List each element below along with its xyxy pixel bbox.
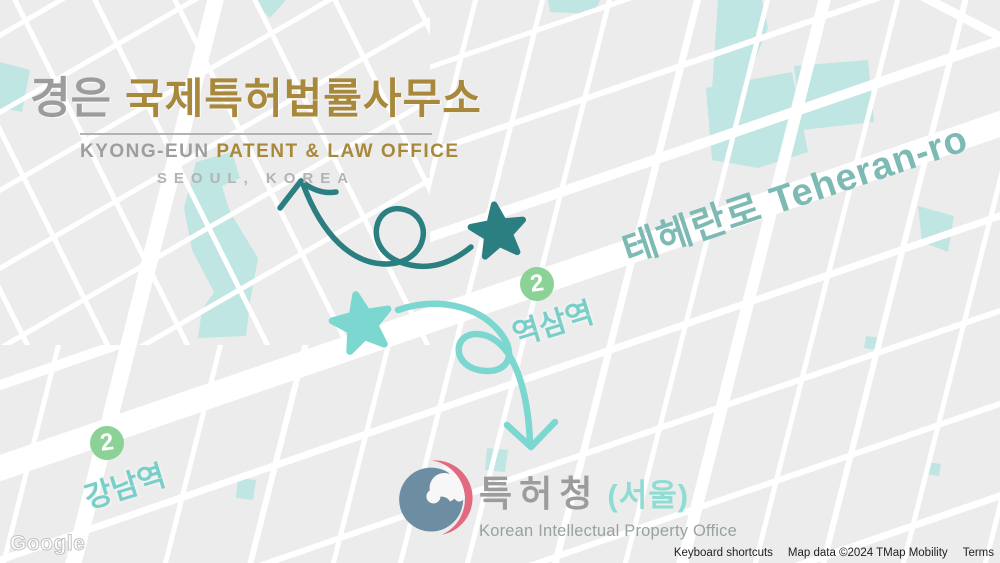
office-korean-name: 국제특허법률사무소 [125, 65, 482, 126]
google-logo[interactable]: Google [10, 532, 85, 556]
terms-link[interactable]: Terms [963, 547, 994, 559]
map-data-copyright: Map data ©2024 TMap Mobility [788, 547, 948, 559]
office-title-divider [80, 133, 432, 135]
map-attribution-bar: Keyboard shortcuts Map data ©2024 TMap M… [674, 547, 994, 559]
office-english-title: KYONG-EUN PATENT & LAW OFFICE [80, 141, 432, 163]
office-location-text: SEOUL, KOREA [80, 170, 432, 187]
office-korean-prefix: 경은 [30, 62, 111, 126]
custom-location-map: 테헤란로 Teheran-ro 2 역삼역 2 강남역 경은 국제특허법률 [0, 0, 1000, 563]
office-english-name: PATENT & LAW OFFICE [216, 141, 459, 162]
kipo-taegeuk-logo-icon [396, 459, 474, 537]
kipo-text-block: 특허청 (서울) Korean Intellectual Property Of… [479, 465, 737, 541]
office-korean-title: 경은 국제특허법률사무소 [80, 62, 432, 126]
kipo-korean-suffix: (서울) [607, 470, 689, 515]
kipo-korean-name: 특허청 [479, 465, 599, 517]
keyboard-shortcuts-link[interactable]: Keyboard shortcuts [674, 547, 773, 559]
kipo-english-name: Korean Intellectual Property Office [479, 522, 737, 541]
office-branding-block: 경은 국제특허법률사무소 KYONG-EUN PATENT & LAW OFFI… [80, 62, 432, 187]
office-english-prefix: KYONG-EUN [80, 141, 210, 162]
